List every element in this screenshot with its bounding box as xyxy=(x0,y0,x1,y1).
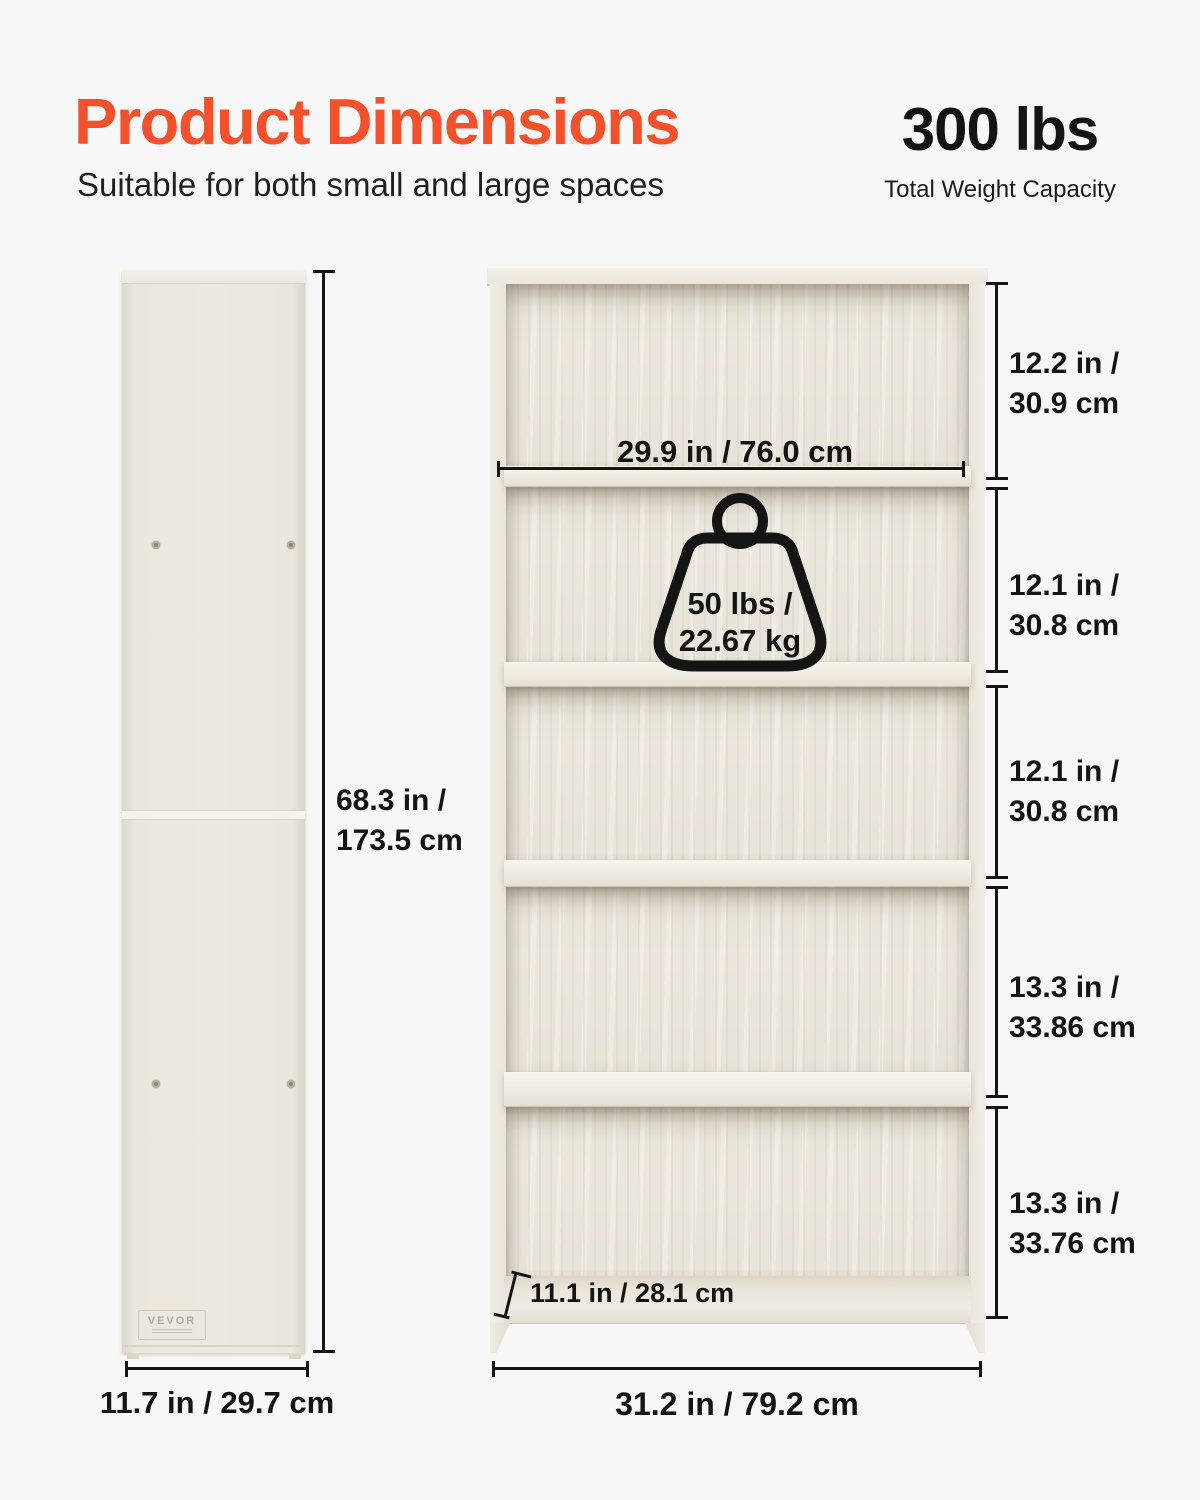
front-view-foot xyxy=(490,1323,510,1353)
shelf-width-dimension-line xyxy=(497,467,965,470)
height-dimension-line xyxy=(322,270,325,1353)
compartment-4-dimension-line xyxy=(995,886,998,1098)
side-view-foot xyxy=(127,1353,139,1359)
screw-icon xyxy=(152,1080,160,1088)
side-panel-base-groove xyxy=(122,1345,305,1347)
compartment-1-label: 12.2 in / 30.9 cm xyxy=(1009,344,1119,423)
shelf-capacity-line1: 50 lbs / xyxy=(625,585,855,622)
screw-icon xyxy=(152,541,160,549)
page-title: Product Dimensions xyxy=(74,84,679,159)
compartment-1-dimension-line xyxy=(995,282,998,480)
brand-plate: VEVOR xyxy=(138,1310,206,1340)
compartment-3-label: 12.1 in / 30.8 cm xyxy=(1009,752,1119,831)
bookcase-right-wall xyxy=(969,284,985,1323)
side-panel-seam xyxy=(122,810,305,820)
shelf-3 xyxy=(504,860,971,887)
compartment-3 xyxy=(506,686,969,860)
depth-dimension-label: 11.1 in / 28.1 cm xyxy=(530,1276,734,1312)
overall-width-dimension-line xyxy=(492,1367,982,1370)
product-dimensions-infographic: Product Dimensions Suitable for both sma… xyxy=(0,0,1200,1500)
brand-logo: VEVOR xyxy=(148,1316,197,1327)
side-width-dimension-label: 11.7 in / 29.7 cm xyxy=(92,1383,342,1424)
brand-tagline-lines xyxy=(152,1329,192,1335)
compartment-2-label: 12.1 in / 30.8 cm xyxy=(1009,566,1119,645)
overall-width-dimension-label: 31.2 in / 79.2 cm xyxy=(492,1383,982,1425)
capacity-label: Total Weight Capacity xyxy=(870,176,1130,204)
compartment-2-dimension-line xyxy=(995,487,998,673)
capacity-value: 300 lbs xyxy=(870,100,1130,160)
compartment-5-label: 13.3 in / 33.76 cm xyxy=(1009,1184,1136,1263)
side-width-dimension-line xyxy=(125,1367,309,1370)
compartment-5 xyxy=(506,1106,969,1276)
side-view-foot xyxy=(289,1353,301,1359)
compartment-5-dimension-line xyxy=(995,1106,998,1319)
side-view-panel: VEVOR xyxy=(122,270,305,1353)
compartment-3-dimension-line xyxy=(995,685,998,879)
front-view-foot xyxy=(965,1323,985,1353)
side-panel-top-edge xyxy=(122,270,305,284)
height-dimension-label: 68.3 in / 173.5 cm xyxy=(336,781,463,860)
bookcase-left-wall xyxy=(490,284,506,1323)
compartment-4-label: 13.3 in / 33.86 cm xyxy=(1009,968,1136,1047)
shelf-4 xyxy=(504,1072,971,1107)
screw-icon xyxy=(287,1080,295,1088)
screw-icon xyxy=(287,541,295,549)
shelf-capacity-line2: 22.67 kg xyxy=(625,622,855,659)
total-weight-capacity: 300 lbs Total Weight Capacity xyxy=(870,100,1130,204)
page-subtitle: Suitable for both small and large spaces xyxy=(77,166,664,204)
compartment-4 xyxy=(506,886,969,1072)
